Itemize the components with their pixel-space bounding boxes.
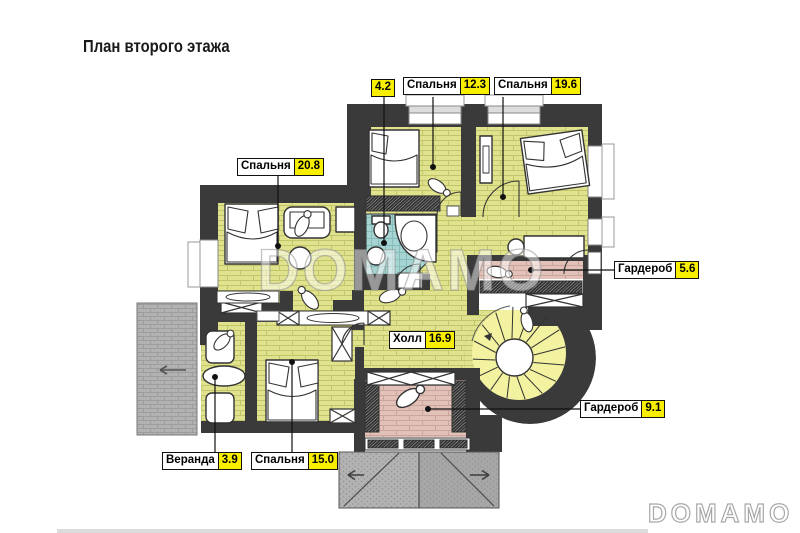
svg-text:DOMAMO: DOMAMO: [258, 238, 547, 303]
svg-text:DOMAMO: DOMAMO: [648, 498, 793, 528]
